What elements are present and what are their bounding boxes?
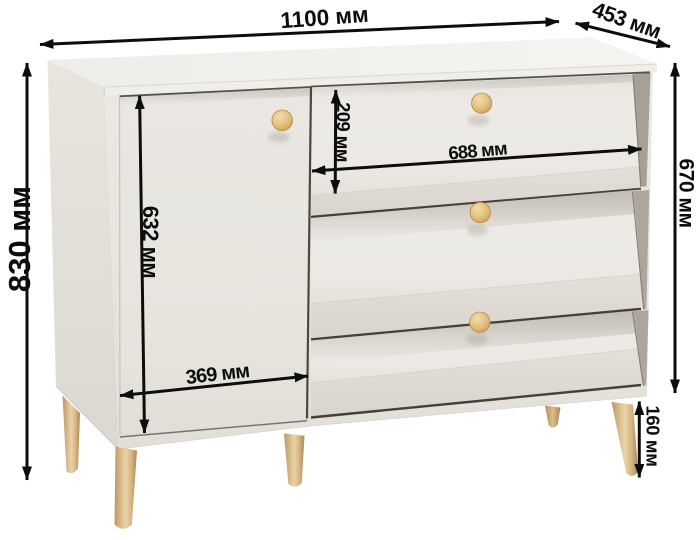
svg-text:632 мм: 632 мм — [138, 206, 163, 278]
svg-text:209 мм: 209 мм — [333, 102, 355, 162]
svg-text:830 мм: 830 мм — [2, 186, 37, 292]
svg-text:160 мм: 160 мм — [643, 406, 664, 467]
svg-text:670 мм: 670 мм — [675, 159, 698, 228]
